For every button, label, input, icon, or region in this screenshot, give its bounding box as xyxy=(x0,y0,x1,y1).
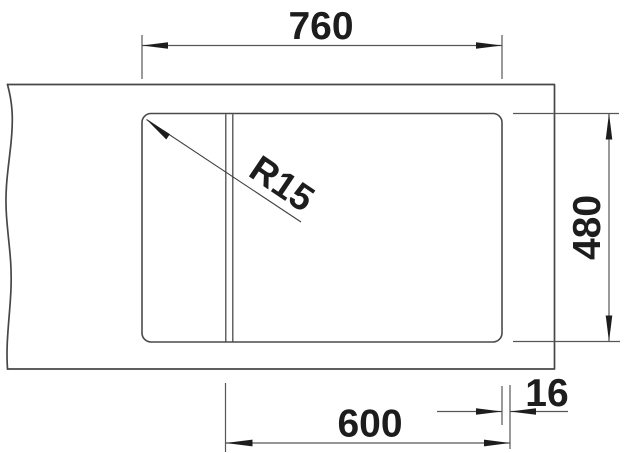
arrowhead-left xyxy=(142,42,168,49)
arrowhead-pointing-right xyxy=(476,408,502,415)
sink-cutout-outline xyxy=(142,114,502,343)
sink-dimension-drawing: 760 480 600 16 xyxy=(0,0,625,453)
sink-cutout xyxy=(142,114,502,343)
arrowhead-left xyxy=(226,440,253,447)
arrowhead-top xyxy=(606,114,613,140)
dimension-top-width: 760 xyxy=(142,5,502,79)
dimension-label-right-height: 480 xyxy=(566,195,609,260)
arrowhead-right xyxy=(484,440,510,447)
drawing-canvas: 760 480 600 16 xyxy=(0,0,625,453)
arrowhead-bottom xyxy=(606,316,613,342)
dimension-bottom-width: 600 xyxy=(226,383,511,452)
dimension-label-right-offset: 16 xyxy=(525,372,568,415)
dimension-label-top-width: 760 xyxy=(288,5,353,48)
worktop-break-edge xyxy=(6,85,12,370)
arrowhead-right xyxy=(476,42,502,49)
dimension-right-height: 480 xyxy=(513,114,620,342)
dimension-label-bottom-width: 600 xyxy=(337,403,402,446)
dimension-right-offset: 16 xyxy=(437,372,569,425)
